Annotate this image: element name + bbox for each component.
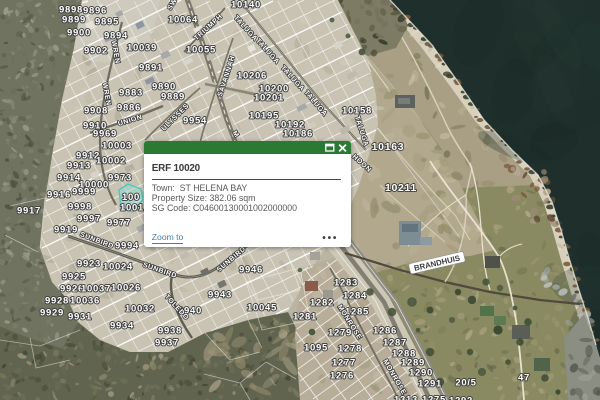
svg-text:10211: 10211 — [385, 182, 417, 194]
svg-text:10039: 10039 — [127, 42, 157, 53]
svg-text:10064: 10064 — [168, 14, 198, 25]
svg-text:9916: 9916 — [47, 189, 71, 200]
svg-text:9973: 9973 — [108, 172, 132, 183]
svg-text:20/5: 20/5 — [455, 377, 476, 388]
svg-text:1278: 1278 — [338, 343, 362, 354]
svg-text:1275: 1275 — [422, 394, 446, 400]
svg-text:9923: 9923 — [77, 258, 101, 269]
svg-text:1001: 1001 — [120, 203, 144, 214]
svg-text:10003: 10003 — [102, 140, 132, 151]
svg-text:9954: 9954 — [183, 115, 207, 126]
svg-text:9998: 9998 — [68, 201, 92, 212]
svg-text:1282: 1282 — [310, 297, 334, 308]
svg-text:9994: 9994 — [115, 240, 139, 251]
svg-text:10158: 10158 — [342, 105, 372, 116]
svg-text:10186: 10186 — [283, 128, 313, 139]
svg-text:1284: 1284 — [343, 290, 367, 301]
svg-text:1095: 1095 — [304, 342, 328, 353]
svg-text:10201: 10201 — [254, 92, 284, 103]
svg-text:9889: 9889 — [161, 91, 185, 102]
svg-text:9977: 9977 — [107, 217, 131, 228]
svg-text:9999: 9999 — [72, 186, 96, 197]
svg-text:9902: 9902 — [84, 45, 108, 56]
svg-text:9883: 9883 — [119, 87, 143, 98]
svg-text:9928: 9928 — [45, 295, 69, 306]
svg-text:9899: 9899 — [62, 14, 86, 25]
svg-text:1292: 1292 — [449, 395, 473, 400]
svg-text:1291: 1291 — [418, 378, 442, 389]
svg-text:1313: 1313 — [394, 394, 418, 400]
svg-text:10163: 10163 — [372, 141, 405, 153]
svg-text:1277: 1277 — [332, 357, 356, 368]
svg-text:10032: 10032 — [125, 303, 155, 314]
svg-text:10026: 10026 — [111, 282, 141, 293]
svg-text:47: 47 — [518, 372, 530, 383]
svg-text:10024: 10024 — [103, 261, 133, 272]
svg-text:9925: 9925 — [62, 271, 86, 282]
svg-text:1290: 1290 — [409, 367, 433, 378]
svg-text:9946: 9946 — [239, 264, 263, 275]
svg-text:1281: 1281 — [293, 311, 317, 322]
svg-text:9997: 9997 — [77, 213, 101, 224]
svg-text:1276: 1276 — [330, 370, 354, 381]
svg-text:10140: 10140 — [231, 0, 261, 10]
svg-text:9929: 9929 — [40, 307, 64, 318]
svg-text:9934: 9934 — [110, 320, 134, 331]
svg-text:1287: 1287 — [383, 337, 407, 348]
svg-text:9919: 9919 — [54, 224, 78, 235]
svg-text:9937: 9937 — [155, 337, 179, 348]
svg-text:9969: 9969 — [93, 128, 117, 139]
svg-text:9931: 9931 — [68, 311, 92, 322]
svg-text:10206: 10206 — [237, 70, 267, 81]
svg-text:9913: 9913 — [67, 160, 91, 171]
svg-text:9886: 9886 — [117, 102, 141, 113]
svg-text:10037: 10037 — [81, 283, 111, 294]
svg-text:9917: 9917 — [17, 205, 41, 216]
svg-text:10055: 10055 — [186, 44, 216, 55]
svg-text:9895: 9895 — [95, 16, 119, 27]
svg-text:9908: 9908 — [84, 105, 108, 116]
svg-text:100: 100 — [122, 192, 140, 203]
svg-text:10036: 10036 — [70, 295, 100, 306]
svg-text:9896: 9896 — [83, 5, 107, 16]
svg-text:9938: 9938 — [158, 325, 182, 336]
svg-text:1286: 1286 — [373, 325, 397, 336]
svg-text:9914: 9914 — [57, 172, 81, 183]
svg-text:10002: 10002 — [96, 155, 126, 166]
svg-text:9943: 9943 — [208, 289, 232, 300]
svg-text:9900: 9900 — [67, 27, 91, 38]
svg-text:1279: 1279 — [328, 327, 352, 338]
svg-text:9891: 9891 — [139, 62, 163, 73]
svg-text:1283: 1283 — [334, 277, 358, 288]
svg-text:10045: 10045 — [247, 302, 277, 313]
